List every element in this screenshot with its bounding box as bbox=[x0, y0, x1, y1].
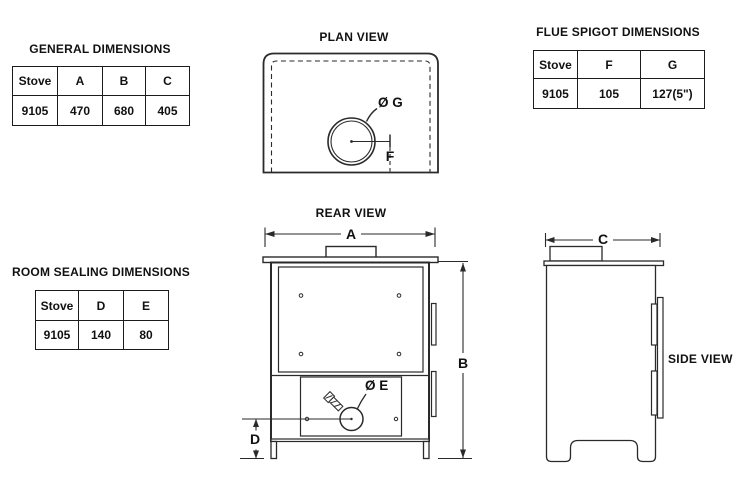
side-hinge-lower bbox=[652, 371, 658, 415]
table-header-cell: C bbox=[146, 67, 189, 96]
dim-label-diameter-e: Ø E bbox=[365, 378, 388, 393]
table-cell: 105 bbox=[578, 79, 641, 108]
rear-flue-box bbox=[326, 247, 376, 258]
table-header-cell: D bbox=[79, 291, 124, 321]
table-cell: 9105 bbox=[534, 79, 578, 108]
table-cell: 470 bbox=[58, 96, 103, 125]
room-sealing-dimensions-title: ROOM SEALING DIMENSIONS bbox=[3, 265, 199, 279]
table-header-cell: A bbox=[58, 67, 103, 96]
side-door-slab bbox=[658, 298, 664, 419]
table-row: 9105 140 80 bbox=[36, 321, 168, 349]
table-header-cell: Stove bbox=[534, 51, 578, 79]
table-cell: 9105 bbox=[13, 96, 58, 125]
plan-view-title: PLAN VIEW bbox=[300, 30, 408, 44]
flue-spigot-dimensions-title: FLUE SPIGOT DIMENSIONS bbox=[525, 25, 711, 39]
rear-left-leg bbox=[271, 442, 277, 459]
general-dimensions-table: Stove A B C 9105 470 680 405 bbox=[12, 66, 190, 126]
dim-label-b: B bbox=[453, 355, 473, 371]
dim-a-arrow-right bbox=[426, 231, 436, 237]
table-cell: 140 bbox=[79, 321, 124, 349]
table-cell: 127(5") bbox=[641, 79, 704, 108]
dim-c-arrow-left bbox=[546, 237, 555, 243]
side-hinge-upper bbox=[652, 304, 658, 345]
side-view-title: SIDE VIEW bbox=[668, 352, 748, 366]
table-cell: 80 bbox=[124, 321, 168, 349]
table-cell: 680 bbox=[103, 96, 146, 125]
side-body-outline bbox=[547, 266, 656, 462]
table-header-cell: Stove bbox=[36, 291, 79, 321]
flue-spigot-dimensions-table: Stove F G 9105 105 127(5") bbox=[533, 50, 705, 109]
rear-view-drawing bbox=[240, 228, 472, 459]
dim-label-a: A bbox=[341, 226, 361, 242]
dim-label-c: C bbox=[593, 231, 613, 247]
rear-hinge-lower bbox=[432, 372, 437, 417]
plan-view-drawing bbox=[264, 54, 439, 173]
table-header-cell: Stove bbox=[13, 67, 58, 96]
dim-label-d: D bbox=[245, 431, 265, 447]
table-row: 9105 470 680 405 bbox=[13, 96, 189, 125]
table-cell: 405 bbox=[146, 96, 189, 125]
rear-body bbox=[271, 263, 429, 442]
plan-body-outline bbox=[264, 54, 439, 173]
dim-label-diameter-g: Ø G bbox=[378, 95, 403, 110]
table-header-cell: E bbox=[124, 291, 168, 321]
side-flue-box bbox=[550, 247, 602, 262]
table-header-cell: G bbox=[641, 51, 704, 79]
table-row: 9105 105 127(5") bbox=[534, 79, 704, 108]
dim-b-arrow-up bbox=[460, 263, 466, 272]
rear-view-title: REAR VIEW bbox=[297, 206, 405, 220]
rear-right-leg bbox=[424, 442, 430, 459]
dim-label-f: F bbox=[382, 148, 398, 164]
rear-hinge-upper bbox=[432, 304, 437, 346]
rear-bottom-plate bbox=[271, 439, 429, 442]
table-header-cell: B bbox=[103, 67, 146, 96]
table-header-row: Stove D E bbox=[36, 291, 168, 321]
dim-c-arrow-right bbox=[651, 237, 660, 243]
dim-d-arrow-up bbox=[253, 419, 259, 427]
stove-dimensions-diagram: GENERAL DIMENSIONS Stove A B C 9105 470 … bbox=[0, 0, 750, 491]
table-header-row: Stove A B C bbox=[13, 67, 189, 96]
room-sealing-dimensions-table: Stove D E 9105 140 80 bbox=[35, 290, 169, 350]
general-dimensions-title: GENERAL DIMENSIONS bbox=[12, 42, 188, 56]
dim-b-arrow-down bbox=[460, 450, 466, 459]
dim-d-arrow-down bbox=[253, 451, 259, 459]
table-header-row: Stove F G bbox=[534, 51, 704, 79]
table-header-cell: F bbox=[578, 51, 641, 79]
side-top-plate bbox=[544, 261, 664, 266]
table-cell: 9105 bbox=[36, 321, 79, 349]
dim-a-arrow-left bbox=[265, 231, 275, 237]
side-view-drawing bbox=[544, 233, 664, 462]
